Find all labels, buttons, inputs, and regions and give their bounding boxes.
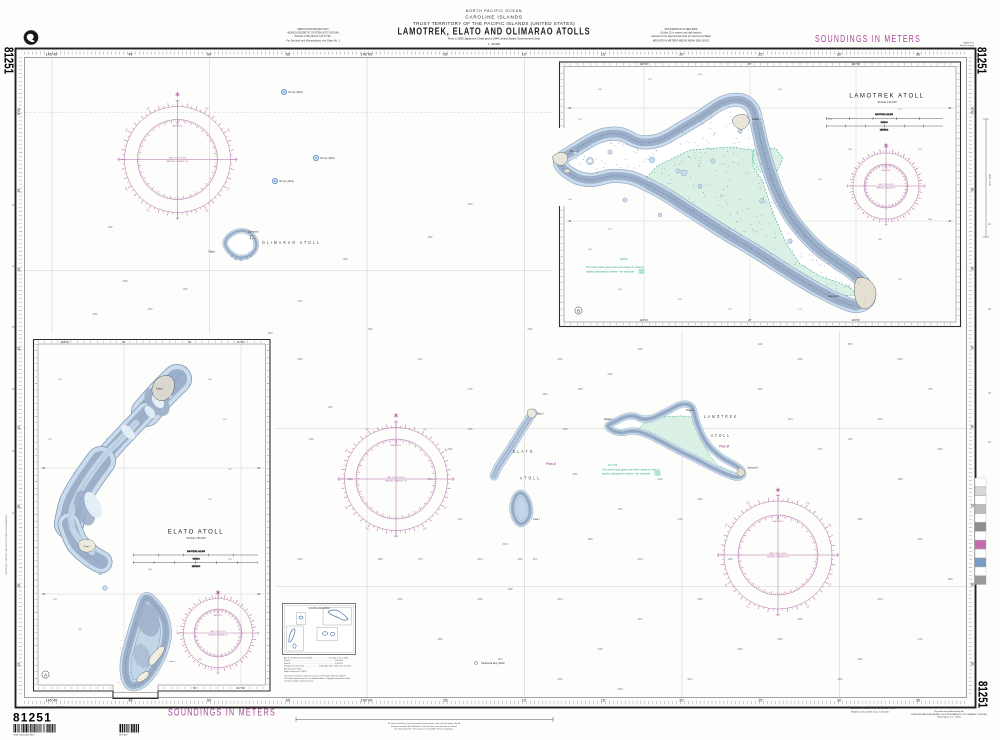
svg-text:NOTE: NOTE: [620, 257, 628, 261]
svg-text:45´: 45´: [17, 346, 21, 351]
svg-text:3046: 3046: [557, 359, 563, 361]
svg-text:Olimarao I.: Olimarao I.: [248, 231, 260, 234]
svg-text:10´: 10´: [522, 699, 527, 703]
svg-text:55´: 55´: [17, 188, 21, 193]
svg-text:1388: 1388: [377, 559, 383, 561]
svg-text:MAGNETIC: MAGNETIC: [391, 444, 402, 447]
svg-text:CAROLINE ISLANDS: CAROLINE ISLANDS: [465, 15, 522, 20]
svg-text:SCALE 1:250,000 AT LAT 07°20´: SCALE 1:250,000 AT LAT 07°20´: [295, 35, 332, 38]
svg-text:Plan A: Plan A: [546, 462, 557, 466]
svg-text:Harapanta Rep (1944): Harapanta Rep (1944): [481, 662, 505, 665]
svg-text:55´: 55´: [970, 188, 974, 193]
svg-text:Lamotrek I.: Lamotrek I.: [747, 467, 759, 470]
svg-text:2234: 2234: [297, 301, 303, 303]
svg-text:35´: 35´: [916, 52, 921, 56]
svg-text:VAR 2°15´E (1975): VAR 2°15´E (1975): [210, 630, 226, 633]
svg-text:40´: 40´: [948, 219, 952, 223]
svg-text:From a 1929 Japanese Chart and: From a 1929 Japanese Chart and a 1944 Un…: [448, 37, 541, 41]
svg-text:2366: 2366: [777, 639, 783, 641]
svg-text:2366: 2366: [297, 359, 303, 361]
svg-text:1750: 1750: [927, 389, 933, 391]
svg-text:PRINT SIZE: PRINT SIZE: [988, 174, 990, 187]
svg-text:VAR 2°15´E (1975): VAR 2°15´E (1975): [169, 156, 187, 159]
svg-text:2568: 2568: [477, 599, 483, 601]
svg-text:2750: 2750: [677, 519, 683, 521]
svg-text:147°32´: 147°32´: [236, 686, 245, 690]
svg-text:25´: 25´: [748, 318, 752, 322]
svg-text:OLIMARAO ATOLL: OLIMARAO ATOLL: [262, 240, 321, 245]
svg-text:2188: 2188: [507, 589, 513, 591]
svg-text:2430: 2430: [917, 539, 923, 541]
svg-text:2962: 2962: [542, 394, 548, 396]
svg-text:Falaite I.: Falaite I.: [752, 118, 762, 121]
svg-text:35´: 35´: [17, 504, 21, 509]
svg-text:146°00´: 146°00´: [361, 52, 374, 56]
svg-text:35´: 35´: [916, 699, 921, 703]
svg-text:2188: 2188: [597, 649, 603, 651]
svg-text:reduced to the approximate lev: reduced to the approximate level of Lowe…: [651, 35, 711, 38]
svg-text:2914: 2914: [477, 559, 483, 561]
svg-text:05´: 05´: [443, 699, 448, 703]
svg-text:NORTH PACIFIC OCEAN: NORTH PACIFIC OCEAN: [466, 9, 523, 13]
svg-text:DEFENSE MAPPING AGENCY HYDROGR: DEFENSE MAPPING AGENCY HYDROGRAPHIC/TOPO…: [911, 713, 987, 716]
svg-text:81251: 81251: [975, 47, 989, 74]
svg-text:country of origin continue to: country of origin continue to exist.: [284, 680, 314, 683]
svg-text:Pugue I.: Pugue I.: [686, 409, 695, 412]
svg-text:NSN 7642014207857: NSN 7642014207857: [14, 735, 36, 737]
svg-text:measure exactly 254 millimeter: measure exactly 254 millimeters. If the …: [391, 725, 457, 728]
svg-text:Falipi I.: Falipi I.: [208, 251, 216, 254]
svg-text:25´: 25´: [257, 592, 261, 596]
svg-text:METERS: METERS: [192, 566, 201, 568]
svg-text:50´: 50´: [207, 52, 212, 56]
svg-text:NAUTICAL MILES: NAUTICAL MILES: [875, 113, 893, 116]
svg-text:2188: 2188: [617, 689, 623, 691]
svg-text:2820: 2820: [837, 679, 843, 681]
svg-text:2046: 2046: [397, 599, 403, 601]
svg-text:55´: 55´: [286, 699, 291, 703]
svg-text:VAR 2°15´E (1975): VAR 2°15´E (1975): [769, 552, 787, 555]
svg-text:COPYRIGHT 1985 BY THE UNITED S: COPYRIGHT 1985 BY THE UNITED STATES GOVE…: [5, 514, 8, 575]
svg-text:2046: 2046: [572, 474, 578, 476]
svg-text:3046: 3046: [502, 544, 508, 546]
svg-text:30´: 30´: [17, 583, 21, 588]
svg-text:1672: 1672: [532, 559, 538, 561]
svg-text:50´: 50´: [193, 686, 197, 690]
svg-text:30´: 30´: [837, 699, 842, 703]
svg-text:8°00´: 8°00´: [17, 107, 21, 115]
svg-text:146°30´: 146°30´: [851, 62, 860, 66]
svg-text:SOUNDINGS IN METERS: SOUNDINGS IN METERS: [168, 708, 276, 719]
svg-text:A U.S. Government Chart 6048: A U.S. Government Chart 6048 . . . . . .…: [284, 657, 349, 660]
svg-text:National Imagery: National Imagery: [960, 44, 974, 47]
svg-text:50´: 50´: [970, 267, 974, 272]
svg-text:ELATO: ELATO: [513, 449, 535, 454]
svg-text:2820: 2820: [447, 449, 453, 451]
svg-text:MAGNETIC: MAGNETIC: [213, 614, 223, 617]
svg-text:HEIGHTS IN METERS ABOVE MEAN S: HEIGHTS IN METERS ABOVE MEAN SEA LEVEL: [653, 40, 710, 43]
svg-text:SCALE 1:50,000: SCALE 1:50,000: [186, 536, 206, 540]
svg-text:VAR 2°15´E (1975): VAR 2°15´E (1975): [387, 476, 405, 479]
svg-text:35´: 35´: [970, 504, 974, 509]
svg-text:Elato I.: Elato I.: [537, 413, 545, 416]
svg-text:the chart distortion. This cop: the chart distortion. This copy is not c…: [395, 728, 454, 731]
svg-text:15´: 15´: [601, 699, 606, 703]
svg-text:1 : 250,000: 1 : 250,000: [488, 43, 501, 46]
svg-text:Plan B . . . . . . . . . . . .: Plan B . . . . . . . . . . . . . . . . .…: [284, 663, 344, 665]
svg-text:ANNUAL CHANGE 2´E: ANNUAL CHANGE 2´E: [767, 556, 789, 559]
svg-text:1495: 1495: [727, 559, 733, 561]
svg-text:1292: 1292: [517, 559, 523, 561]
svg-text:2820: 2820: [527, 329, 533, 331]
svg-text:depths indicated in meters—for: depths indicated in meters—for example: [602, 472, 651, 476]
svg-text:2188: 2188: [637, 349, 643, 351]
svg-text:145°40´: 145°40´: [46, 699, 59, 703]
svg-text:3890: 3890: [437, 639, 443, 641]
svg-text:25´: 25´: [758, 699, 763, 703]
svg-text:Elato I.: Elato I.: [156, 388, 164, 391]
svg-text:147°32´: 147°32´: [236, 340, 245, 344]
svg-text:2914: 2914: [687, 679, 693, 681]
svg-text:The area tinted green has been: The area tinted green has been swept to …: [602, 468, 660, 472]
svg-text:1388: 1388: [897, 479, 903, 481]
svg-text:1672: 1672: [637, 619, 643, 621]
svg-text:40´: 40´: [970, 425, 974, 430]
svg-text:1672: 1672: [497, 659, 503, 661]
svg-text:146°30´: 146°30´: [851, 318, 860, 322]
svg-text:B Japanese Chart 612 . . . .: B Japanese Chart 612 . . . . . . . . . .…: [284, 665, 352, 668]
svg-text:32´: 32´: [188, 340, 192, 344]
svg-text:1848: 1848: [367, 329, 373, 331]
svg-text:1848: 1848: [947, 579, 953, 581]
svg-text:3124: 3124: [417, 359, 423, 361]
svg-text:2648: 2648: [427, 479, 433, 481]
svg-text:3046: 3046: [697, 599, 703, 601]
svg-text:Toas I.: Toas I.: [533, 518, 540, 521]
svg-text:Lamotrek, Elato and Olimarao A: Lamotrek, Elato and Olimarao Atolls: [851, 706, 896, 710]
svg-text:To ensure that this chart was: To ensure that this chart was printed at…: [388, 722, 461, 725]
svg-text:30´: 30´: [837, 52, 842, 56]
svg-text:50´: 50´: [207, 699, 212, 703]
svg-text:YARDS: YARDS: [192, 557, 200, 560]
svg-text:25´: 25´: [970, 662, 974, 667]
svg-text:SOUNDINGS IN METERS: SOUNDINGS IN METERS: [665, 27, 698, 31]
svg-text:45´: 45´: [568, 106, 572, 110]
svg-text:2366: 2366: [467, 429, 473, 431]
svg-text:1750: 1750: [182, 289, 188, 291]
svg-text:30´: 30´: [122, 340, 126, 344]
svg-text:25´: 25´: [758, 52, 763, 56]
svg-text:Miscellaneous data.: Miscellaneous data.: [284, 667, 302, 670]
svg-text:For Symbols and Abbreviations,: For Symbols and Abbreviations, see Chart…: [286, 40, 340, 43]
svg-text:SOUNDINGS IN METERS: SOUNDINGS IN METERS: [815, 34, 921, 45]
svg-text:20´: 20´: [679, 52, 684, 56]
svg-text:1388: 1388: [342, 259, 348, 261]
svg-text:2046: 2046: [897, 359, 903, 361]
svg-text:30´: 30´: [42, 467, 46, 470]
svg-text:The area tinted green has been: The area tinted green has been swept to …: [586, 265, 644, 269]
svg-text:10´: 10´: [522, 52, 527, 56]
svg-text:LAMOTREK ATOLL: LAMOTREK ATOLL: [849, 94, 924, 100]
svg-text:B: B: [577, 308, 580, 313]
svg-text:146°20´: 146°20´: [639, 62, 648, 66]
svg-text:2914: 2914: [557, 599, 563, 601]
svg-text:2568: 2568: [797, 359, 803, 361]
svg-text:Rf rep (1944): Rf rep (1944): [280, 180, 294, 183]
svg-text:1495: 1495: [847, 439, 853, 441]
svg-text:3890: 3890: [92, 314, 98, 316]
svg-text:2234: 2234: [877, 419, 883, 421]
svg-text:3890: 3890: [562, 429, 568, 431]
svg-text:1750: 1750: [617, 509, 623, 511]
svg-text:45´: 45´: [128, 699, 133, 703]
svg-text:1388: 1388: [577, 389, 583, 391]
svg-text:SOURCE DIAGRAM: SOURCE DIAGRAM: [308, 607, 329, 610]
svg-text:3046: 3046: [557, 679, 563, 681]
svg-text:ANNUAL CHANGE 2´E: ANNUAL CHANGE 2´E: [385, 480, 407, 483]
svg-text:45´: 45´: [970, 346, 974, 351]
svg-text:30´: 30´: [970, 583, 974, 588]
svg-text:Rf rep (1944): Rf rep (1944): [289, 91, 303, 94]
svg-text:Depth curves are in 1929.: Depth curves are in 1929.: [284, 670, 307, 673]
svg-text:25´: 25´: [17, 662, 21, 667]
svg-text:Plan B: Plan B: [719, 445, 730, 449]
svg-text:depths indicated in meters—for: depths indicated in meters—for example: [586, 270, 635, 274]
svg-text:25´: 25´: [42, 593, 46, 596]
svg-text:146°28´: 146°28´: [60, 340, 69, 344]
svg-text:2648: 2648: [937, 449, 943, 451]
svg-text:Prepared and published by the: Prepared and published by the: [934, 710, 965, 713]
svg-text:MAGNETIC: MAGNETIC: [881, 169, 891, 172]
svg-text:2648: 2648: [697, 499, 703, 501]
svg-text:3890: 3890: [847, 344, 853, 346]
svg-text:ATOLL: ATOLL: [711, 433, 731, 438]
svg-text:ANNUAL CHANGE 2´E: ANNUAL CHANGE 2´E: [167, 160, 189, 163]
svg-text:2430: 2430: [607, 374, 613, 376]
svg-text:Rf rep (1944): Rf rep (1944): [321, 157, 335, 160]
svg-text:1848: 1848: [587, 539, 593, 541]
svg-text:2750: 2750: [467, 389, 473, 391]
svg-text:146°20´: 146°20´: [639, 318, 648, 322]
svg-text:NAUTICAL MILES: NAUTICAL MILES: [187, 550, 205, 553]
svg-text:1024: 1024: [698, 74, 704, 76]
svg-text:2430: 2430: [297, 559, 303, 561]
svg-text:30´: 30´: [257, 466, 261, 470]
svg-text:81251: 81251: [13, 713, 52, 725]
svg-text:8°00´: 8°00´: [970, 107, 974, 115]
svg-text:VAR 2°15´E (1975): VAR 2°15´E (1975): [878, 183, 894, 186]
svg-text:1495: 1495: [857, 659, 863, 661]
svg-text:40´: 40´: [17, 425, 21, 430]
svg-text:2568: 2568: [347, 479, 353, 481]
svg-text:81251: 81251: [976, 681, 990, 708]
svg-text:146°00´: 146°00´: [361, 699, 374, 703]
svg-text:2962: 2962: [427, 237, 433, 239]
svg-text:ATOLL: ATOLL: [520, 476, 542, 481]
svg-text:1292: 1292: [757, 344, 763, 346]
svg-text:MAGNETIC: MAGNETIC: [172, 125, 183, 128]
svg-text:U.S. No. 7, 7th Corps Engr. US: U.S. No. 7, 7th Corps Engr. US 1-85: [30, 706, 66, 709]
svg-text:1292: 1292: [107, 227, 113, 229]
svg-text:MAGNETIC: MAGNETIC: [773, 520, 784, 523]
svg-text:2046: 2046: [147, 309, 153, 311]
svg-text:2234: 2234: [657, 479, 663, 481]
svg-text:ANNUAL CHANGE 2´E: ANNUAL CHANGE 2´E: [209, 634, 229, 637]
svg-text:55´: 55´: [286, 52, 291, 56]
svg-text:15´: 15´: [601, 52, 606, 56]
svg-text:ANNUAL CHANGE 2´E: ANNUAL CHANGE 2´E: [877, 187, 897, 190]
svg-text:25´: 25´: [748, 62, 752, 66]
svg-text:YARDS: YARDS: [880, 121, 888, 124]
svg-text:NGA Stock No. 81251 Scale 1: NGA Stock No. 81251 Scale 1:250,000: [851, 711, 890, 714]
svg-text:1750: 1750: [417, 559, 423, 561]
svg-text:NOTE: NOTE: [608, 463, 618, 467]
svg-text:1292: 1292: [308, 439, 314, 441]
svg-text:Falipi I.: Falipi I.: [83, 546, 90, 548]
svg-text:50´: 50´: [17, 267, 21, 272]
svg-text:2750: 2750: [917, 639, 923, 641]
svg-text:3124: 3124: [877, 599, 883, 601]
svg-text:SPL*A-P: SPL*A-P: [119, 734, 128, 737]
svg-text:Plan A . . . . . . . . . . . .: Plan A . . . . . . . . . . . . . . . . .…: [284, 659, 343, 662]
svg-text:1848: 1848: [757, 389, 763, 391]
svg-text:15: 15: [640, 270, 643, 274]
svg-text:1495: 1495: [327, 407, 333, 409]
svg-text:Falaite I.: Falaite I.: [604, 418, 614, 421]
svg-text:2234: 2234: [457, 519, 463, 521]
svg-text:Pugue I.: Pugue I.: [570, 150, 579, 153]
svg-text:TRUST TERRITORY OF THE PACIFIC: TRUST TERRITORY OF THE PACIFIC ISLANDS (…: [413, 21, 575, 26]
svg-text:05´: 05´: [443, 52, 448, 56]
svg-text:15: 15: [656, 472, 659, 476]
svg-text:45´: 45´: [128, 52, 133, 56]
svg-text:2568: 2568: [122, 281, 128, 283]
svg-text:81251: 81251: [2, 47, 16, 74]
svg-text:2430: 2430: [467, 204, 473, 206]
svg-text:Toas I.: Toas I.: [169, 661, 176, 663]
svg-text:3124: 3124: [637, 559, 643, 561]
svg-text:20´: 20´: [679, 699, 684, 703]
svg-text:METERS: METERS: [880, 130, 889, 132]
svg-text:3124: 3124: [787, 419, 793, 421]
svg-text:2750: 2750: [817, 449, 823, 451]
svg-text:LAMOTREK: LAMOTREK: [704, 414, 738, 419]
svg-text:145°40´: 145°40´: [46, 52, 59, 56]
svg-text:SCALE 1:50,000: SCALE 1:50,000: [877, 100, 897, 104]
svg-text:2366: 2366: [797, 619, 803, 621]
svg-text:2820: 2820: [737, 649, 743, 651]
svg-text:2962: 2962: [857, 519, 863, 521]
svg-text:45´: 45´: [948, 106, 952, 110]
svg-text:ELATO ATOLL: ELATO ATOLL: [168, 530, 225, 536]
svg-text:40´: 40´: [568, 219, 572, 223]
svg-text:Washington, D.C. 20315: Washington, D.C. 20315: [937, 716, 962, 719]
svg-text:Lamotrek I.: Lamotrek I.: [828, 295, 840, 298]
